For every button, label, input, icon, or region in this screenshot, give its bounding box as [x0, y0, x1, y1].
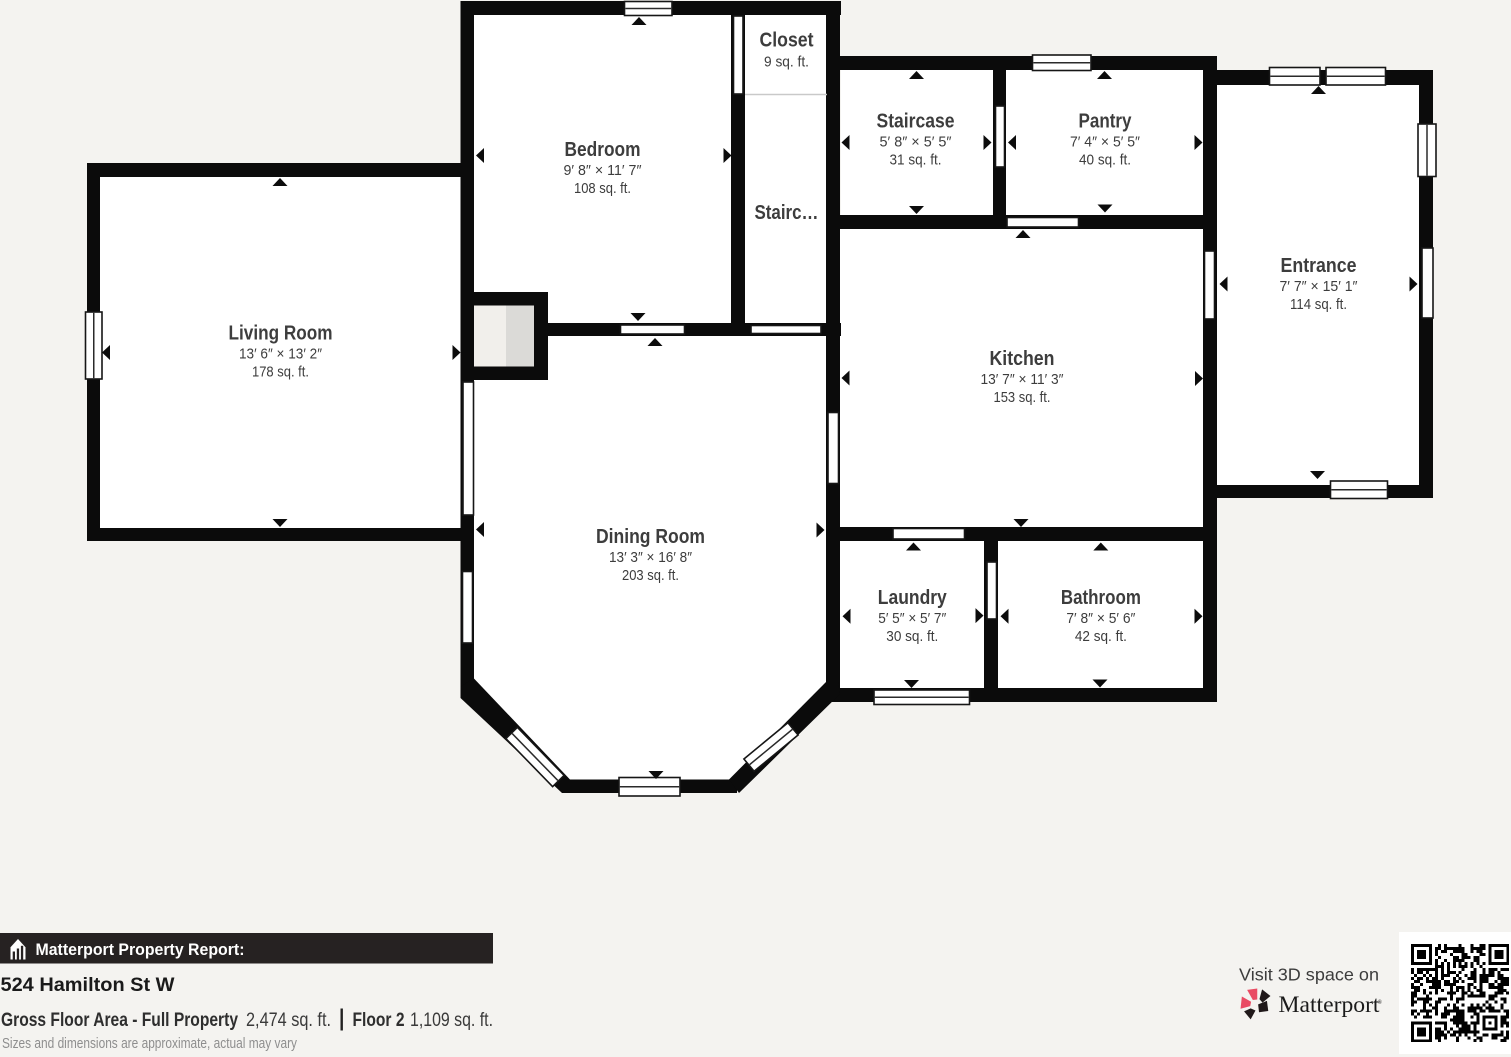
- svg-text:13′ 7″ × 11′ 3″: 13′ 7″ × 11′ 3″: [981, 371, 1065, 388]
- svg-text:13′ 3″ × 16′ 8″: 13′ 3″ × 16′ 8″: [609, 549, 693, 566]
- svg-text:42 sq. ft.: 42 sq. ft.: [1075, 628, 1127, 645]
- svg-text:Kitchen: Kitchen: [990, 348, 1055, 370]
- svg-text:Visit 3D space on: Visit 3D space on: [1239, 965, 1379, 985]
- svg-text:2,474 sq. ft.: 2,474 sq. ft.: [246, 1010, 331, 1031]
- svg-text:7′ 7″ × 15′ 1″: 7′ 7″ × 15′ 1″: [1280, 278, 1359, 295]
- svg-text:Gross Floor Area - Full Proper: Gross Floor Area - Full Property: [1, 1010, 238, 1031]
- svg-text:178 sq. ft.: 178 sq. ft.: [252, 364, 309, 381]
- svg-text:7′ 4″ × 5′ 5″: 7′ 4″ × 5′ 5″: [1070, 134, 1141, 151]
- svg-text:1,109 sq. ft.: 1,109 sq. ft.: [410, 1010, 493, 1031]
- svg-text:Bathroom: Bathroom: [1061, 587, 1141, 609]
- svg-text:®: ®: [1378, 999, 1383, 1006]
- svg-text:114 sq. ft.: 114 sq. ft.: [1290, 296, 1347, 313]
- svg-text:Entrance: Entrance: [1281, 255, 1357, 277]
- svg-text:Laundry: Laundry: [878, 587, 948, 609]
- svg-text:153 sq. ft.: 153 sq. ft.: [994, 389, 1051, 406]
- svg-text:5′ 8″ × 5′ 5″: 5′ 8″ × 5′ 5″: [880, 134, 953, 151]
- svg-text:Pantry: Pantry: [1079, 111, 1133, 133]
- svg-text:108 sq. ft.: 108 sq. ft.: [574, 180, 631, 197]
- svg-text:Matterport Property Report:: Matterport Property Report:: [36, 940, 245, 959]
- svg-text:Closet: Closet: [760, 30, 814, 52]
- svg-text:Stairc…: Stairc…: [755, 202, 819, 224]
- svg-text:Staircase: Staircase: [877, 111, 955, 133]
- svg-text:9′ 8″ × 11′ 7″: 9′ 8″ × 11′ 7″: [564, 162, 643, 179]
- svg-text:Bedroom: Bedroom: [565, 139, 641, 161]
- svg-text:13′ 6″ × 13′ 2″: 13′ 6″ × 13′ 2″: [239, 346, 323, 363]
- svg-text:Sizes and dimensions are appro: Sizes and dimensions are approximate, ac…: [2, 1036, 298, 1052]
- svg-text:9 sq. ft.: 9 sq. ft.: [764, 54, 809, 71]
- svg-text:524 Hamilton St W: 524 Hamilton St W: [1, 974, 176, 996]
- svg-text:203 sq. ft.: 203 sq. ft.: [622, 567, 679, 584]
- svg-text:40 sq. ft.: 40 sq. ft.: [1079, 152, 1131, 169]
- svg-text:30 sq. ft.: 30 sq. ft.: [886, 628, 938, 645]
- svg-text:31 sq. ft.: 31 sq. ft.: [890, 152, 942, 169]
- svg-text:5′ 5″ × 5′ 7″: 5′ 5″ × 5′ 7″: [878, 610, 947, 627]
- svg-text:Floor 2: Floor 2: [353, 1010, 405, 1031]
- svg-text:7′ 8″ × 5′ 6″: 7′ 8″ × 5′ 6″: [1066, 610, 1136, 627]
- svg-text:Matterport: Matterport: [1279, 992, 1381, 1017]
- svg-text:Living Room: Living Room: [229, 323, 333, 345]
- svg-text:Dining Room: Dining Room: [596, 526, 705, 548]
